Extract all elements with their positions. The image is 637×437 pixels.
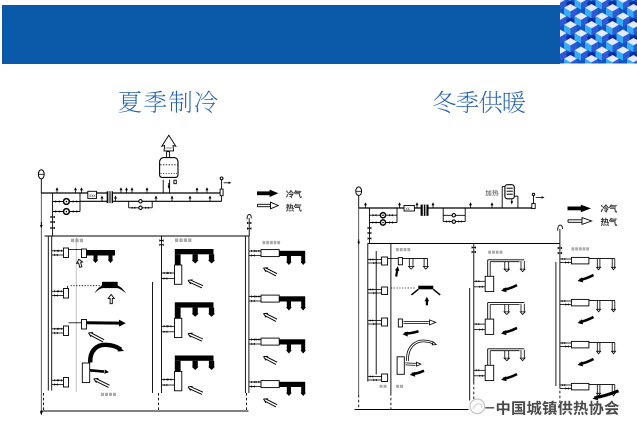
svg-text:xxx: xxx <box>89 193 96 198</box>
